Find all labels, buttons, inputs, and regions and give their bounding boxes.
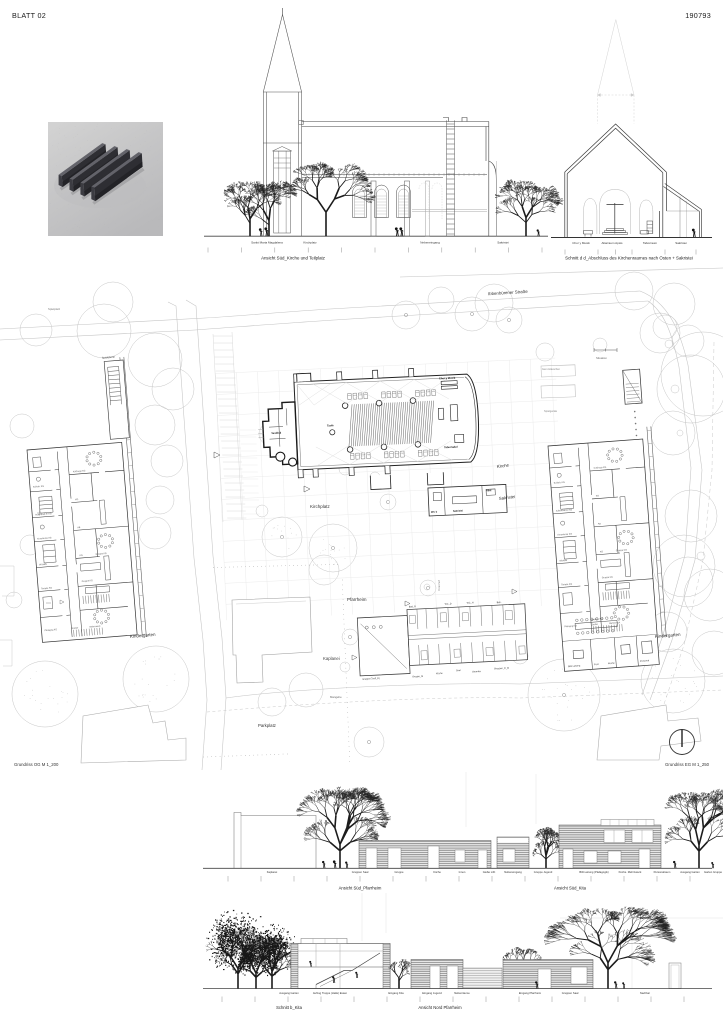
svg-text:Mangehe: Mangehe bbox=[330, 695, 342, 699]
svg-text:Vestibül: Vestibül bbox=[271, 431, 281, 435]
svg-text:Nebeneingang: Nebeneingang bbox=[420, 241, 440, 245]
svg-text:Tabernakel: Tabernakel bbox=[444, 445, 458, 450]
svg-text:Gruppe Jugend: Gruppe Jugend bbox=[534, 870, 553, 874]
svg-text:Ansicht Süd_Kirche und Teilpla: Ansicht Süd_Kirche und Teilplatz bbox=[261, 256, 325, 261]
svg-text:Personalraum: Personalraum bbox=[654, 870, 671, 874]
svg-text:KG: KG bbox=[75, 499, 79, 501]
svg-text:Spielgeräte: Spielgeräte bbox=[544, 409, 558, 413]
svg-text:Pfarrheim: Pfarrheim bbox=[347, 597, 367, 602]
svg-text:Gruppe_M: Gruppe_M bbox=[412, 675, 423, 679]
svg-text:Pool: Pool bbox=[594, 664, 599, 666]
svg-text:BLATT 02: BLATT 02 bbox=[12, 11, 46, 20]
svg-text:Grundriss EG M 1_250: Grundriss EG M 1_250 bbox=[665, 762, 710, 767]
svg-text:Eingang Jugend: Eingang Jugend bbox=[422, 991, 442, 995]
svg-text:Altarraum Apsis: Altarraum Apsis bbox=[601, 241, 623, 245]
svg-text:Küche: Küche bbox=[436, 673, 443, 675]
svg-text:Gruppen Saal: Gruppen Saal bbox=[562, 991, 579, 995]
svg-text:Nebenräume: Nebenräume bbox=[454, 991, 470, 995]
svg-text:KG: KG bbox=[600, 551, 604, 553]
svg-text:Küche. Mehrzweck: Küche. Mehrzweck bbox=[619, 870, 642, 874]
svg-text:Nachbar: Nachbar bbox=[640, 991, 650, 995]
svg-text:Schnitt d d_Abschluss des Kirc: Schnitt d d_Abschluss des Kirchenraumes … bbox=[565, 256, 693, 261]
svg-text:Gem.Häuschen: Gem.Häuschen bbox=[542, 367, 561, 371]
svg-text:Küche: Küche bbox=[433, 870, 441, 874]
svg-text:Taufe: Taufe bbox=[327, 423, 334, 427]
svg-text:Garder: Garder bbox=[71, 626, 78, 630]
svg-text:Innenhof: Innenhof bbox=[437, 580, 441, 591]
svg-text:Gremika: Gremika bbox=[472, 670, 482, 673]
svg-text:Sakristei: Sakristei bbox=[675, 241, 687, 245]
svg-text:Eingang Kita: Eingang Kita bbox=[388, 991, 404, 995]
svg-text:Ansicht Süd_Kita: Ansicht Süd_Kita bbox=[554, 886, 587, 891]
svg-text:190793: 190793 bbox=[685, 11, 711, 20]
svg-text:Parkplatz: Parkplatz bbox=[258, 723, 276, 728]
svg-text:Kaplanei: Kaplanei bbox=[323, 656, 340, 661]
svg-text:Bad_R: Bad_R bbox=[409, 606, 416, 608]
svg-text:WC b: WC b bbox=[431, 511, 438, 514]
svg-text:KG: KG bbox=[80, 555, 84, 557]
svg-text:Beh.: Beh. bbox=[497, 602, 502, 604]
svg-text:Nebeneingang: Nebeneingang bbox=[504, 870, 522, 874]
svg-text:Kirchplatz: Kirchplatz bbox=[303, 241, 317, 245]
svg-text:Ansicht Nord Pfarrheim: Ansicht Nord Pfarrheim bbox=[418, 1005, 462, 1010]
svg-text:Ausgang Garten: Ausgang Garten bbox=[680, 870, 700, 874]
svg-text:Taborraum: Taborraum bbox=[643, 241, 658, 245]
svg-text:Sakristei: Sakristei bbox=[497, 241, 509, 245]
svg-text:WC_D: WC_D bbox=[445, 603, 452, 605]
svg-text:Aufzug Treppe (Halle) Essen: Aufzug Treppe (Halle) Essen bbox=[313, 991, 348, 995]
svg-text:Kaplanei: Kaplanei bbox=[267, 870, 278, 874]
svg-text:Eingang Pfarrheim: Eingang Pfarrheim bbox=[519, 991, 542, 995]
svg-text:Abst: Abst bbox=[486, 489, 492, 492]
svg-text:Situation: Situation bbox=[596, 356, 607, 360]
svg-text:Sakristei: Sakristei bbox=[453, 509, 463, 512]
svg-text:Chor y Musik: Chor y Musik bbox=[572, 241, 590, 245]
svg-text:Garten Gruppe: Garten Gruppe bbox=[704, 870, 722, 874]
svg-text:Kirchplatz: Kirchplatz bbox=[310, 504, 331, 509]
svg-text:Schnitt b_Kita: Schnitt b_Kita bbox=[276, 1005, 303, 1010]
svg-text:Gruppe: Gruppe bbox=[395, 870, 404, 874]
svg-text:Sankt Maria Magdalena: Sankt Maria Magdalena bbox=[251, 241, 283, 245]
svg-text:Garder: Garder bbox=[591, 623, 598, 627]
svg-text:Ansicht Süd_Pfarrheim: Ansicht Süd_Pfarrheim bbox=[339, 886, 382, 891]
svg-text:Spielplatz: Spielplatz bbox=[48, 307, 61, 311]
svg-text:Ausgang Garten: Ausgang Garten bbox=[279, 991, 299, 995]
svg-text:WC_H: WC_H bbox=[467, 602, 474, 604]
svg-text:Gruppen Saal: Gruppen Saal bbox=[352, 870, 369, 874]
svg-text:KG: KG bbox=[596, 495, 600, 497]
svg-text:Gieße LiFt: Gieße LiFt bbox=[483, 870, 496, 874]
svg-text:Chor y Musik: Chor y Musik bbox=[439, 376, 456, 381]
svg-text:Grundriss OG M 1_200: Grundriss OG M 1_200 bbox=[14, 762, 59, 767]
svg-text:Innen: Innen bbox=[459, 870, 466, 874]
svg-text:Bibl.Leitung (Pädagogik): Bibl.Leitung (Pädagogik) bbox=[579, 870, 608, 874]
svg-text:Saal: Saal bbox=[456, 670, 461, 672]
